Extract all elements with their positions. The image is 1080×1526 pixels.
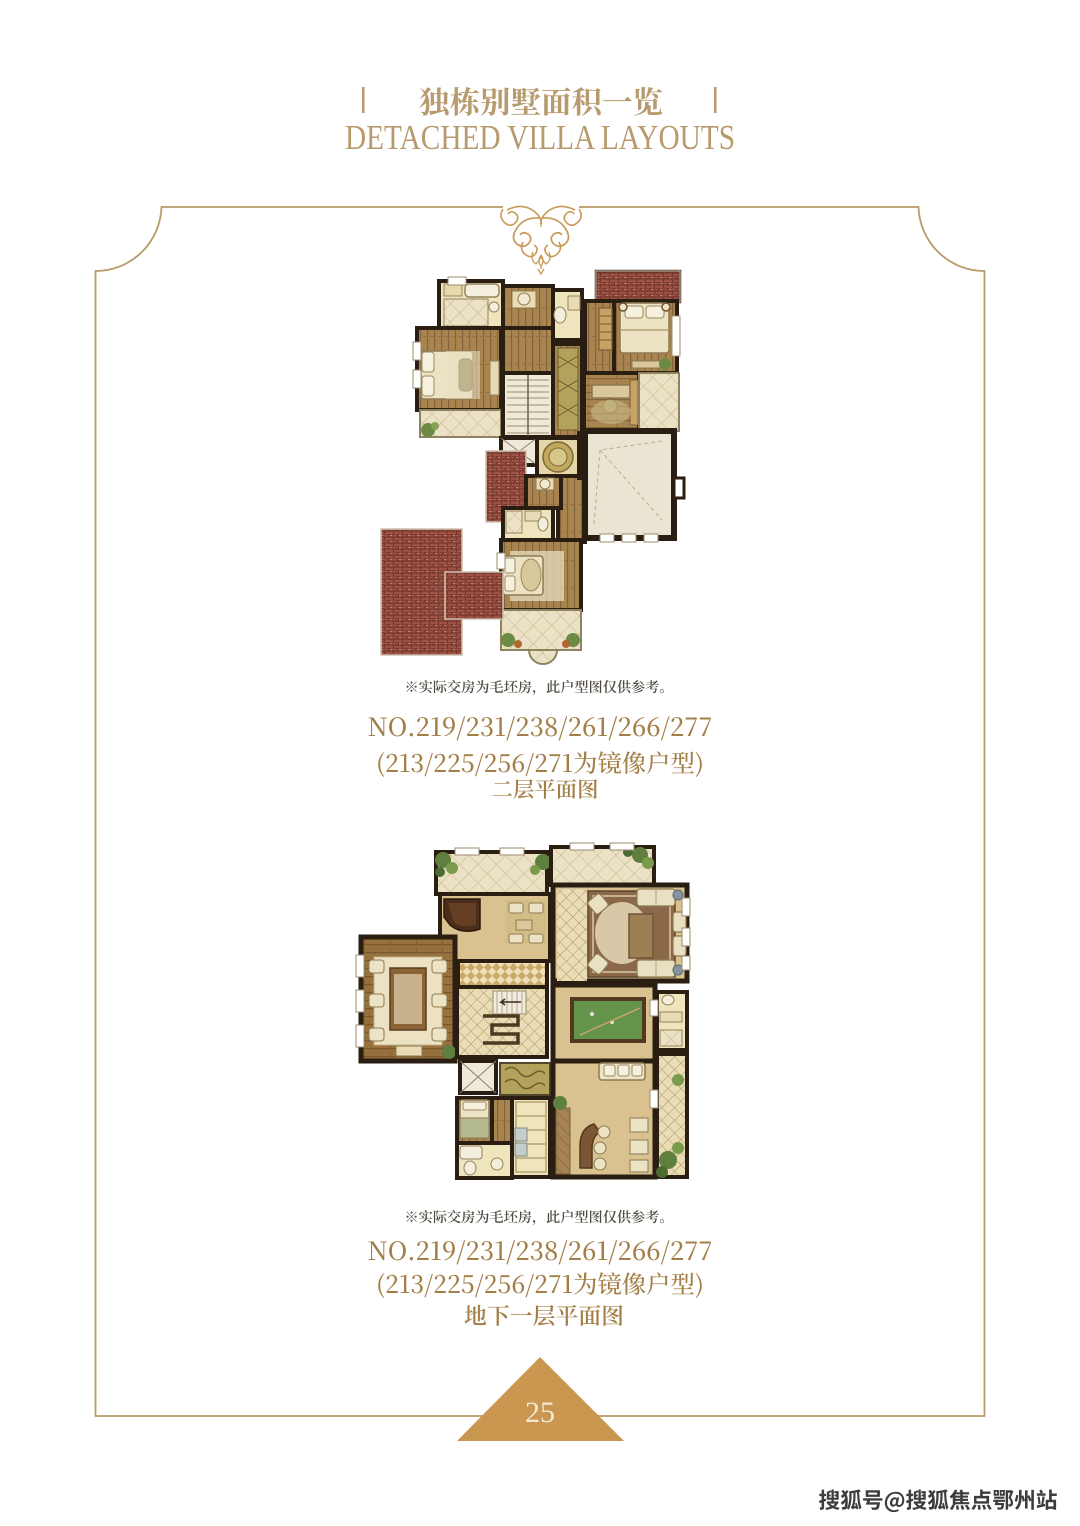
- svg-text:25: 25: [525, 1396, 555, 1429]
- svg-text:DETACHED VILLA LAYOUTS: DETACHED VILLA LAYOUTS: [345, 118, 735, 157]
